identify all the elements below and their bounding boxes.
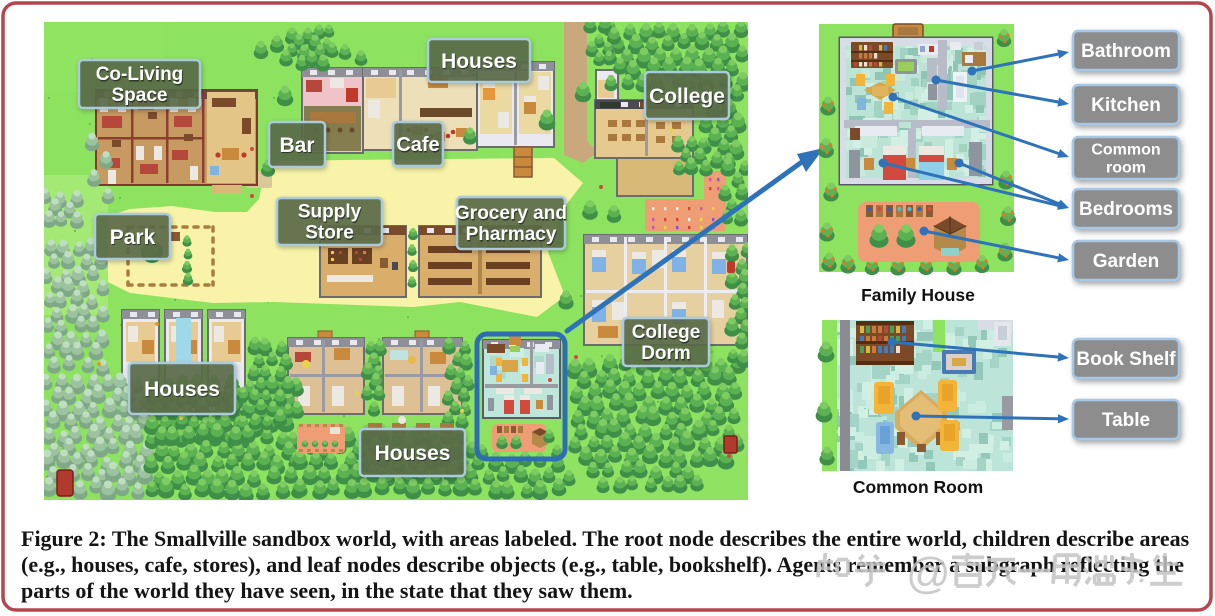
svg-text:Pharmacy: Pharmacy [466, 224, 557, 245]
svg-text:Store: Store [305, 223, 354, 244]
svg-text:Bathroom: Bathroom [1081, 41, 1171, 62]
svg-text:Book Shelf: Book Shelf [1076, 349, 1176, 370]
svg-text:Supply: Supply [298, 202, 362, 223]
svg-text:room: room [1106, 160, 1146, 177]
svg-text:Houses: Houses [375, 442, 451, 465]
svg-text:Table: Table [1102, 410, 1150, 431]
svg-text:Grocery and: Grocery and [455, 203, 567, 224]
svg-text:College: College [649, 85, 725, 108]
svg-text:College: College [632, 322, 701, 343]
svg-text:Common Room: Common Room [853, 477, 983, 497]
svg-text:Garden: Garden [1093, 251, 1160, 272]
svg-text:Dorm: Dorm [641, 343, 691, 364]
svg-text:Park: Park [110, 226, 156, 249]
svg-text:Common: Common [1091, 142, 1160, 159]
svg-text:Family House: Family House [861, 285, 975, 305]
svg-text:Houses: Houses [144, 378, 220, 401]
svg-text:Houses: Houses [441, 50, 517, 73]
svg-text:Kitchen: Kitchen [1091, 95, 1161, 116]
svg-text:Co-Living: Co-Living [96, 64, 184, 85]
svg-text:Bedrooms: Bedrooms [1079, 199, 1173, 220]
svg-text:Cafe: Cafe [396, 134, 439, 156]
svg-text:Space: Space [112, 85, 168, 106]
svg-text:Bar: Bar [279, 134, 314, 157]
